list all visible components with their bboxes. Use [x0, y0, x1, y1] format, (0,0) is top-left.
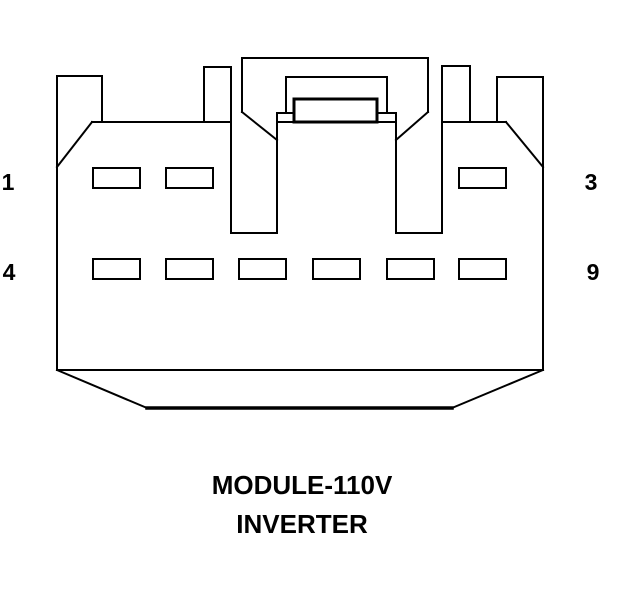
latch-channel-right: [396, 66, 442, 233]
pin-slot-3: [459, 168, 506, 188]
body-skirt-right-diagonal: [452, 370, 543, 408]
body-chamfer-right: [506, 122, 543, 167]
pin-slot-4: [93, 259, 140, 279]
pin-label-row1-right: 3: [585, 169, 598, 195]
pin-label-row1-left: 1: [2, 169, 15, 195]
pin-slot-1: [93, 168, 140, 188]
pin-slot-6: [239, 259, 286, 279]
pin-label-row2-right: 9: [587, 259, 600, 285]
latch-button: [294, 99, 377, 122]
caption-line1: MODULE-110V: [212, 470, 393, 500]
pin-label-row2-left: 4: [3, 259, 16, 285]
connector-tab-right: [497, 77, 543, 370]
body-skirt-left-diagonal: [57, 370, 147, 408]
connector-pinout-diagram: 1 3 4 9 MODULE-110V INVERTER: [0, 0, 624, 600]
pin-slot-8: [387, 259, 434, 279]
pin-slot-2: [166, 168, 213, 188]
connector-tab-left: [57, 76, 102, 370]
body-chamfer-left: [57, 122, 92, 167]
connector-small-tab-left: [204, 67, 231, 122]
pin-slot-5: [166, 259, 213, 279]
caption-line2: INVERTER: [236, 509, 368, 539]
connector-diagram-page: 1 3 4 9 MODULE-110V INVERTER: [0, 0, 624, 600]
pin-slot-9: [459, 259, 506, 279]
pin-slot-7: [313, 259, 360, 279]
latch-channel-left: [231, 67, 277, 233]
connector-small-tab-right: [442, 66, 470, 122]
